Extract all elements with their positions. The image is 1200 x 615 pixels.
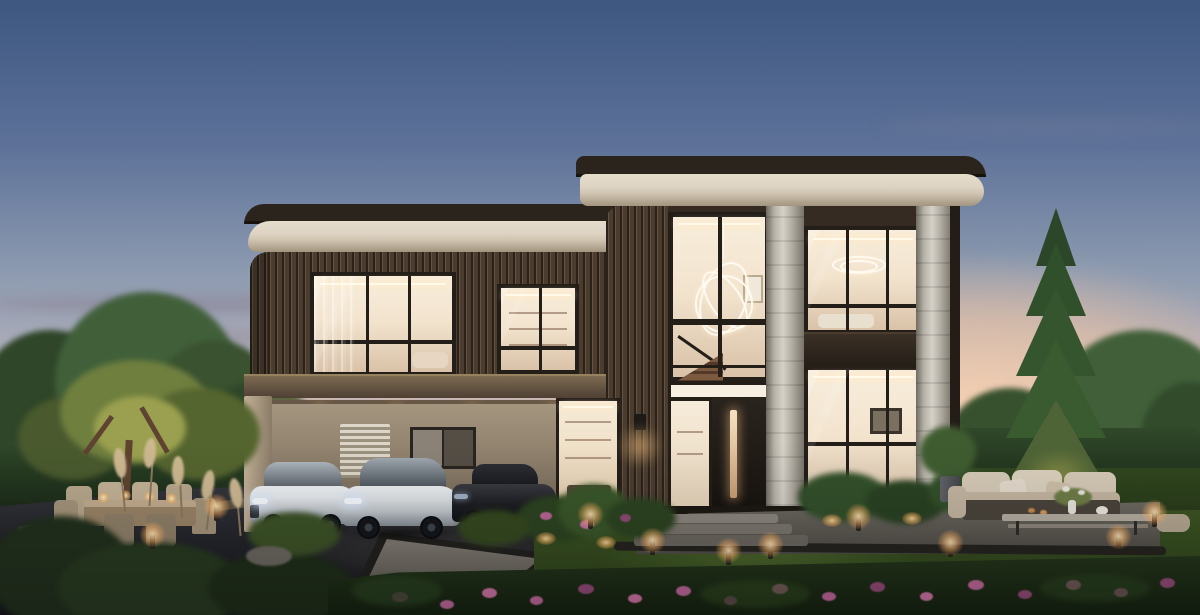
upper-living-window	[804, 226, 922, 334]
table-flower-white	[1078, 490, 1085, 495]
path-bollard-light	[1116, 536, 1121, 551]
bedroom-window	[310, 272, 456, 376]
pampas-plume	[172, 456, 184, 486]
table-leg	[1134, 521, 1137, 535]
path-bollard-light	[948, 542, 953, 557]
flower	[620, 514, 631, 522]
path-bollard-light	[856, 516, 861, 531]
path-bollard-light	[726, 550, 731, 565]
coffee-table	[1002, 486, 1158, 538]
flower	[870, 582, 885, 592]
car-grille	[250, 505, 259, 518]
flower	[482, 588, 497, 598]
path-bollard-light	[1152, 512, 1157, 527]
flower	[540, 512, 552, 520]
flower-foliage	[1040, 574, 1150, 602]
path-bollard-light	[650, 540, 655, 555]
villa-dusk-exterior-rendering	[0, 0, 1200, 615]
garden-rock	[246, 546, 292, 566]
glass-reflection	[808, 230, 918, 330]
window-mullion	[718, 217, 722, 377]
shelf-line	[565, 439, 611, 441]
path-bollard-light	[214, 506, 219, 521]
bookshelf-window	[497, 284, 579, 374]
table-flower-white	[1062, 486, 1070, 492]
bed-uplight	[822, 514, 842, 527]
cloud-streak	[880, 120, 1200, 132]
glass-reflection	[314, 276, 452, 372]
path-bollard-light	[768, 544, 773, 559]
bed-uplight	[596, 536, 616, 549]
flower	[1018, 590, 1032, 599]
flower	[676, 586, 691, 596]
fern	[458, 510, 530, 546]
car-headlight	[252, 498, 268, 504]
left-roof-fascia	[248, 221, 618, 252]
table-top	[1002, 514, 1154, 521]
cove-light	[563, 406, 613, 408]
path-bollard-light	[588, 514, 593, 529]
flower-foliage	[700, 580, 810, 608]
flower	[578, 584, 594, 594]
table-candle	[166, 493, 177, 504]
carport-fascia	[244, 374, 654, 398]
double-height-glazing	[668, 212, 770, 382]
entry-sidelight-glass	[668, 398, 712, 514]
bed-uplight	[536, 532, 556, 545]
table-leg	[1016, 521, 1019, 535]
travertine-column	[766, 192, 804, 518]
dining-table	[84, 500, 196, 526]
bed-uplight	[902, 512, 922, 525]
right-roof-fascia	[580, 174, 984, 206]
vase	[1068, 500, 1076, 514]
door-light-strip	[730, 410, 737, 498]
tree-canopy-lit	[94, 396, 186, 460]
shelf-line	[677, 431, 703, 433]
flower	[822, 592, 836, 601]
sconce-glow	[616, 424, 664, 468]
car-headlight	[454, 494, 468, 499]
entry-door	[712, 398, 770, 514]
car-headlight	[344, 498, 362, 504]
sofa-arm	[948, 486, 966, 518]
path-bollard-light	[150, 534, 155, 549]
car-wheel	[357, 516, 380, 539]
flower	[920, 592, 933, 601]
flower-foliage	[352, 576, 442, 606]
table-candle	[98, 492, 109, 503]
chandelier-cable	[723, 225, 724, 259]
shelf-line	[565, 421, 611, 423]
shelf-line	[565, 457, 611, 459]
pastry	[1028, 508, 1035, 513]
shelf-line	[677, 453, 703, 455]
glass-reflection	[501, 288, 575, 370]
flower	[968, 580, 984, 590]
window-mullion	[673, 365, 765, 368]
flower	[1160, 578, 1175, 588]
white-liftback-car	[342, 444, 464, 540]
flower	[440, 600, 454, 609]
window-mullion	[673, 319, 765, 325]
car-wheel	[420, 516, 443, 539]
flower	[530, 596, 543, 605]
flower	[628, 594, 642, 603]
